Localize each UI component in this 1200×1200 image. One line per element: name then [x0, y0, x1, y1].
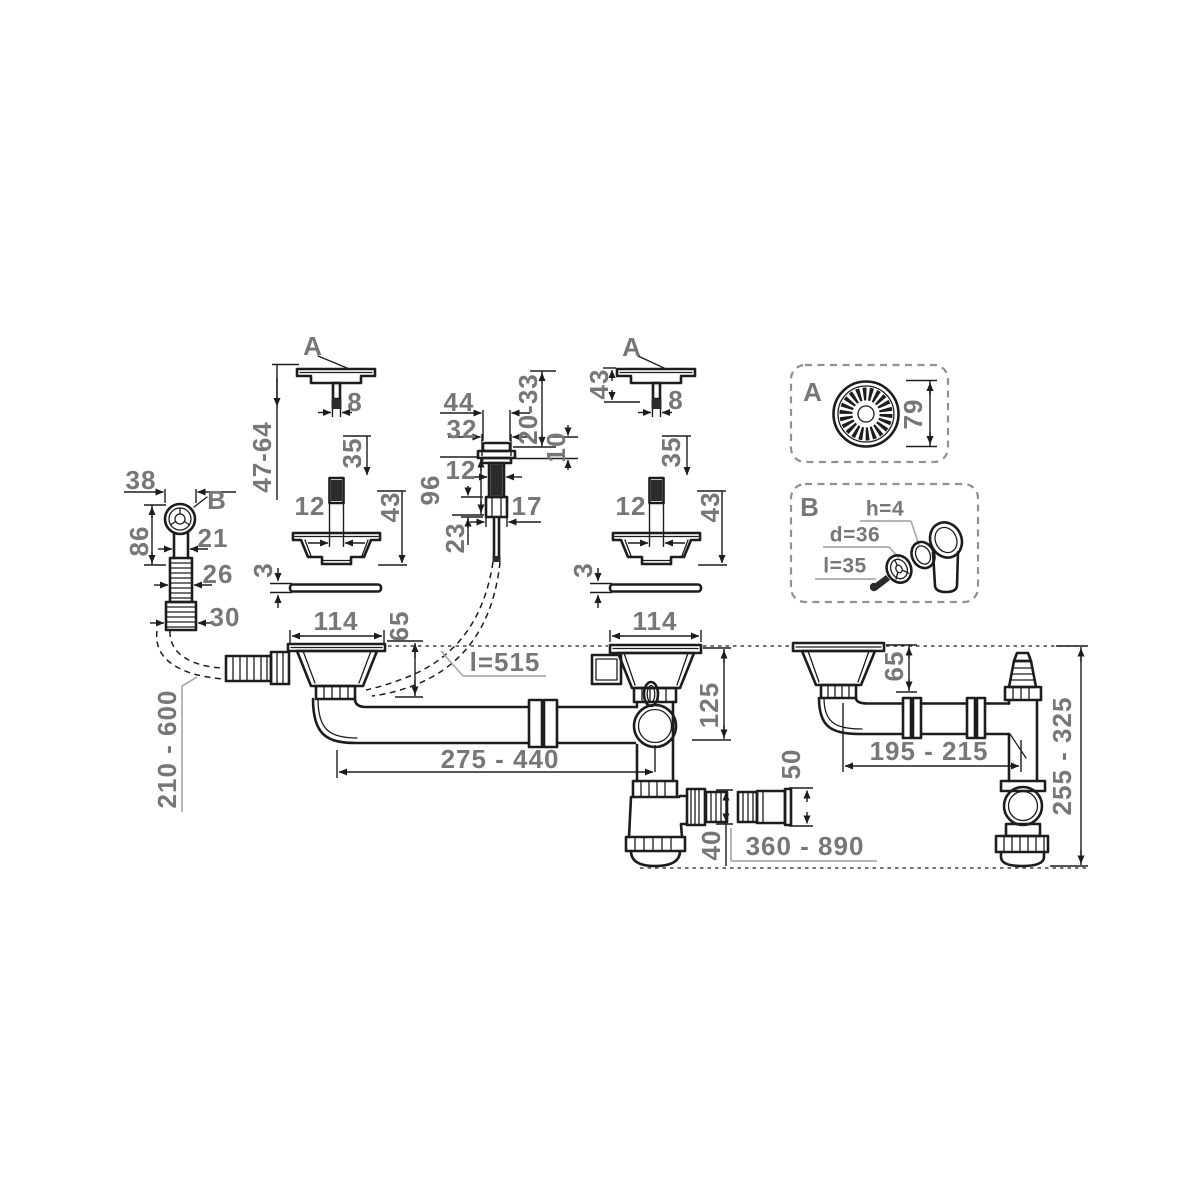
dim-17: 17	[512, 493, 543, 519]
dim-35-left: 35	[339, 438, 365, 469]
detail-a-label: A	[803, 379, 823, 405]
dim-255-325: 255 - 325	[1049, 697, 1075, 816]
callout-a-left: A	[303, 333, 323, 359]
dim-32: 32	[447, 416, 478, 442]
dim-12-right: 12	[616, 493, 647, 519]
dim-12-mid: 12	[446, 457, 477, 483]
dim-38: 38	[126, 467, 157, 493]
dim-275-440: 275 - 440	[441, 746, 560, 772]
dim-8-left: 8	[347, 389, 362, 415]
dim-43-right-top: 43	[586, 369, 612, 400]
cable-length-label: l=515	[470, 649, 541, 675]
line-art	[0, 0, 1200, 1200]
dim-30: 30	[210, 604, 241, 630]
dim-l35: l=35	[823, 556, 866, 577]
dim-210-600: 210 - 600	[154, 690, 180, 809]
dim-3-right: 3	[570, 562, 596, 577]
detail-b-label: B	[800, 494, 820, 520]
dim-114-center: 114	[633, 608, 678, 634]
dim-21: 21	[198, 525, 229, 551]
dim-65-right: 65	[881, 651, 907, 682]
drawing-canvas: A 8 47-64 35 12 43 3 114 65 44 32 20-33 …	[0, 0, 1200, 1200]
dim-44: 44	[444, 389, 475, 415]
dim-96: 96	[417, 475, 443, 506]
callout-b-left: B	[207, 487, 227, 513]
dim-23: 23	[442, 523, 468, 554]
dim-125: 125	[696, 682, 722, 728]
dim-3-left: 3	[250, 562, 276, 577]
dim-360-890: 360 - 890	[746, 833, 865, 859]
left-exploded-view	[270, 356, 407, 608]
dim-35-right: 35	[658, 437, 684, 468]
dim-12-left: 12	[295, 493, 326, 519]
dim-h4: h=4	[866, 499, 904, 520]
dim-114-left: 114	[314, 608, 359, 634]
left-drain-assembly	[226, 630, 636, 747]
dim-43-left: 43	[377, 492, 403, 523]
dim-40: 40	[698, 830, 724, 861]
dim-43-right: 43	[697, 492, 723, 523]
dim-26: 26	[203, 561, 234, 587]
dim-d36: d=36	[830, 525, 880, 546]
dim-50: 50	[778, 749, 804, 780]
dim-65-left: 65	[386, 611, 412, 642]
callout-a-right: A	[622, 334, 642, 360]
dim-79: 79	[900, 399, 926, 430]
dim-10: 10	[543, 432, 569, 463]
dim-195-215: 195 - 215	[870, 738, 989, 764]
dim-8-right: 8	[668, 387, 683, 413]
dim-86: 86	[126, 526, 152, 557]
dim-47-64: 47-64	[249, 421, 275, 493]
dim-20-33: 20-33	[515, 373, 541, 445]
